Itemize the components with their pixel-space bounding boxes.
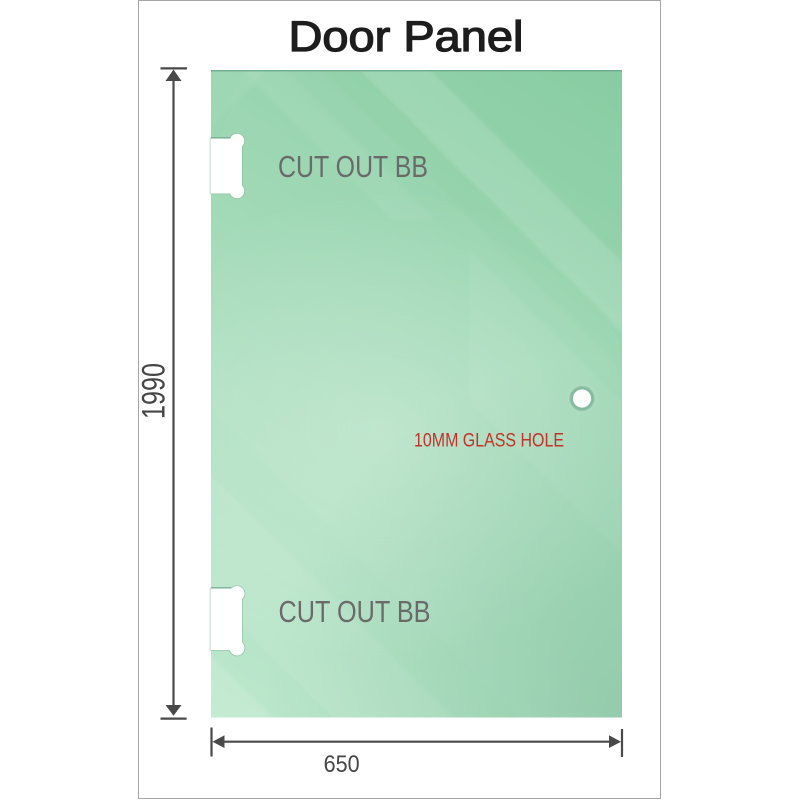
- svg-text:CUT OUT BB: CUT OUT BB: [278, 149, 428, 184]
- svg-text:650: 650: [324, 751, 360, 778]
- svg-text:CUT OUT BB: CUT OUT BB: [279, 594, 431, 629]
- svg-text:1990: 1990: [136, 363, 172, 419]
- svg-text:10MM GLASS HOLE: 10MM GLASS HOLE: [414, 431, 564, 452]
- svg-text:Door Panel: Door Panel: [289, 13, 524, 61]
